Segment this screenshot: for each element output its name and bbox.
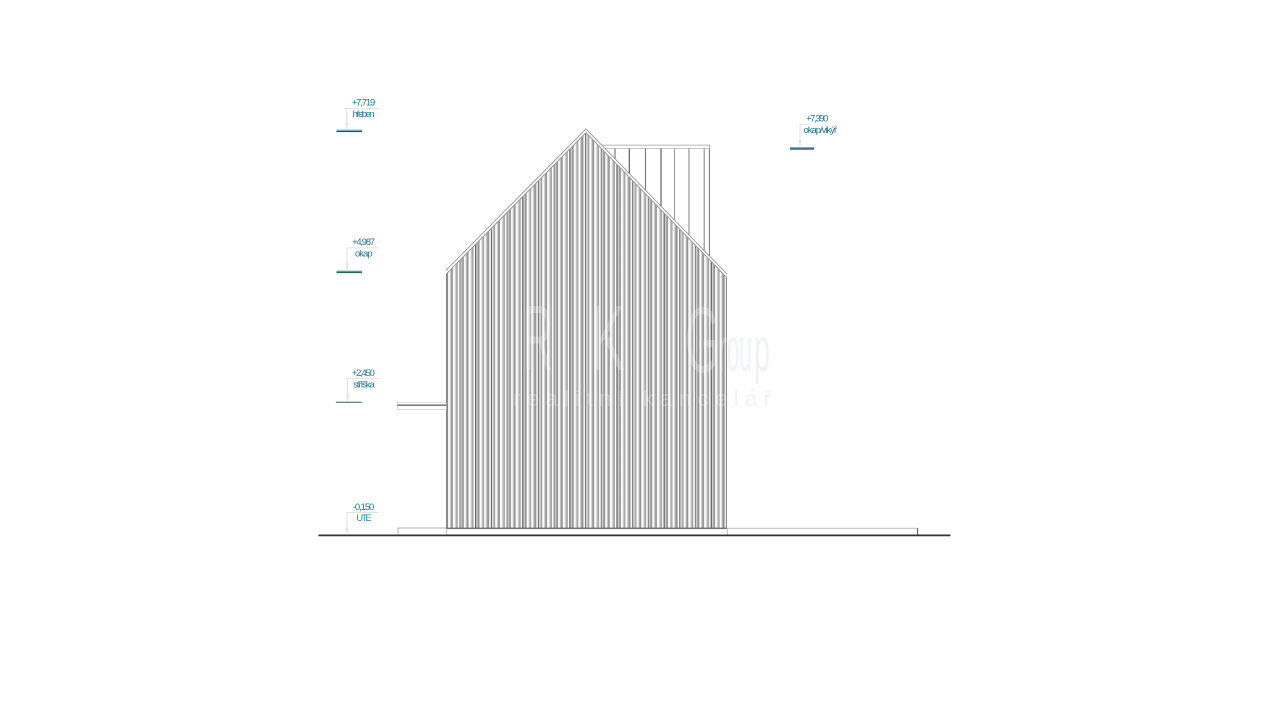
svg-text:R: R bbox=[523, 286, 553, 390]
svg-text:o: o bbox=[727, 315, 739, 385]
svg-text:u: u bbox=[739, 315, 752, 385]
svg-text:G: G bbox=[685, 288, 720, 392]
svg-text:-0,150: -0,150 bbox=[353, 502, 375, 513]
svg-text:okap/vikýř: okap/vikýř bbox=[804, 125, 838, 136]
svg-text:p: p bbox=[754, 315, 770, 385]
svg-text:+7,719: +7,719 bbox=[352, 97, 376, 108]
svg-text:okap: okap bbox=[355, 249, 373, 260]
svg-text:stříška: stříška bbox=[353, 379, 375, 390]
svg-text:+2,450: +2,450 bbox=[352, 368, 375, 379]
svg-text:r: r bbox=[718, 315, 727, 385]
svg-text:+7,390: +7,390 bbox=[806, 113, 829, 124]
svg-text:hřeben: hřeben bbox=[353, 109, 375, 120]
svg-text:K: K bbox=[591, 286, 625, 390]
svg-text:+4,987: +4,987 bbox=[352, 237, 375, 248]
svg-text:UTE: UTE bbox=[356, 513, 372, 524]
